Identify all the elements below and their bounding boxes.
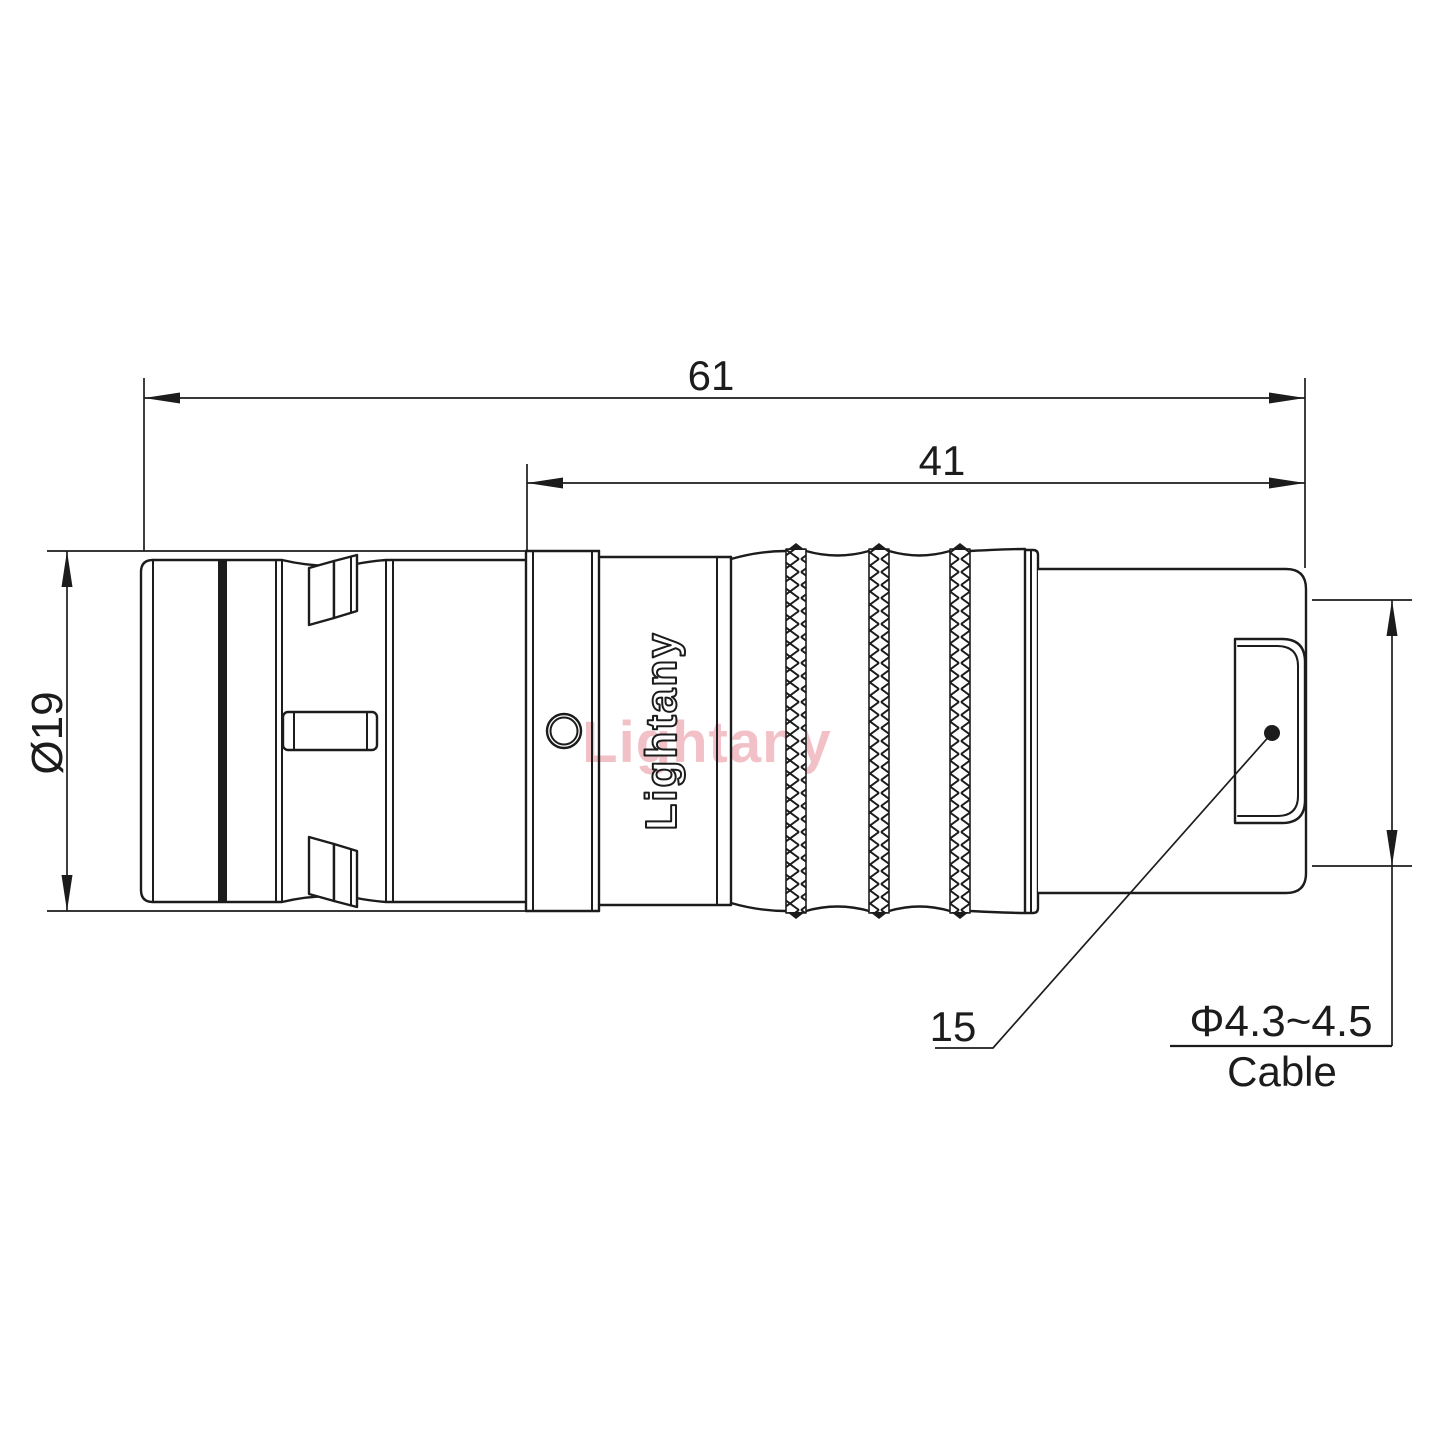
dim61-arrow-right: [1269, 393, 1305, 404]
knurl-band-2: [869, 543, 889, 919]
cable-word-label: Cable: [1227, 1048, 1337, 1095]
grip-top-edge-seg1: [731, 551, 786, 559]
dim19-arrow-bottom: [62, 875, 73, 911]
dim41-arrow-left: [527, 478, 563, 489]
end-cap: [1025, 550, 1038, 913]
vent-hole-outer: [547, 714, 581, 748]
front-cap-outline: [141, 560, 153, 902]
shell-black-stripe: [218, 560, 227, 902]
dim61-label: 61: [688, 352, 735, 399]
grip-top-edge-seg3: [889, 551, 950, 556]
leader-15-label: 15: [930, 1003, 977, 1050]
drawing-canvas: Lightany: [0, 0, 1440, 1440]
grip-bottom-edge-seg2: [806, 907, 869, 912]
cable-range-label: Φ4.3~4.5: [1189, 997, 1372, 1046]
dim19-label: Ø19: [23, 691, 72, 774]
cable-boot: [1038, 569, 1306, 893]
contact-window-outline: [283, 712, 377, 750]
dim41-label: 41: [919, 437, 966, 484]
grip-bottom-edge-seg3: [889, 907, 950, 912]
cable-arrow-bottom: [1387, 830, 1398, 866]
top-lug-side-plate: [334, 555, 357, 618]
grip-top-edge-seg2: [806, 551, 869, 556]
grip-bottom-edge-seg4: [970, 911, 1025, 913]
cable-arrow-top: [1387, 600, 1398, 636]
engraved-brand-text: Lightany: [637, 631, 686, 830]
dimension-outer-diameter: Ø19: [23, 551, 534, 911]
dim61-arrow-left: [144, 393, 180, 404]
connector-technical-drawing: Lightany: [0, 0, 1440, 1440]
top-lug-front-plate: [309, 561, 334, 625]
dimension-rear-length: 41: [527, 437, 1305, 551]
grip-bottom-edge-seg1: [731, 903, 786, 911]
contact-window: [283, 712, 377, 750]
bottom-lug-side-plate: [334, 844, 357, 907]
knurl-band-1: [786, 543, 806, 919]
dimension-overall-length: 61: [144, 352, 1305, 568]
bottom-lug-front-plate: [309, 837, 334, 901]
dim19-arrow-top: [62, 551, 73, 587]
dim41-arrow-right: [1269, 478, 1305, 489]
grip-top-edge-seg4: [970, 549, 1025, 551]
knurl-band-3: [950, 543, 970, 919]
